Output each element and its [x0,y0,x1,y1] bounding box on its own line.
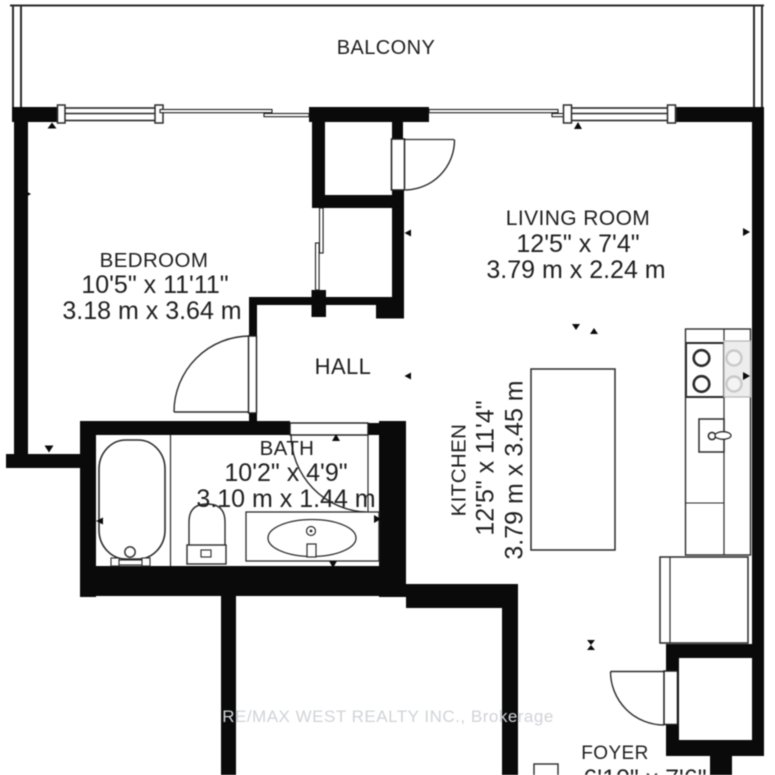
svg-text:FOYER: FOYER [581,743,648,764]
svg-text:LIVING ROOM: LIVING ROOM [506,207,650,230]
svg-text:BALCONY: BALCONY [337,37,435,59]
svg-text:3.79 m x 3.45 m: 3.79 m x 3.45 m [501,380,529,559]
svg-text:10'2" x 4'9": 10'2" x 4'9" [224,459,347,487]
svg-text:BEDROOM: BEDROOM [100,249,209,272]
svg-text:RE/MAX WEST REALTY INC., Broke: RE/MAX WEST REALTY INC., Brokerage [222,707,554,726]
svg-text:6'10" x 7'6": 6'10" x 7'6" [583,765,706,775]
svg-text:HALL: HALL [315,354,372,379]
svg-text:KITCHEN: KITCHEN [447,424,470,517]
svg-text:BATH: BATH [260,437,315,460]
svg-text:10'5" x 11'11": 10'5" x 11'11" [81,271,228,299]
svg-text:12'5" x 11'4": 12'5" x 11'4" [472,400,500,535]
svg-text:3.18 m x 3.64 m: 3.18 m x 3.64 m [62,297,241,325]
svg-text:3.79 m x 2.24 m: 3.79 m x 2.24 m [486,256,665,284]
svg-text:3.10 m x 1.44 m: 3.10 m x 1.44 m [196,485,375,513]
svg-text:12'5" x 7'4": 12'5" x 7'4" [516,230,639,258]
